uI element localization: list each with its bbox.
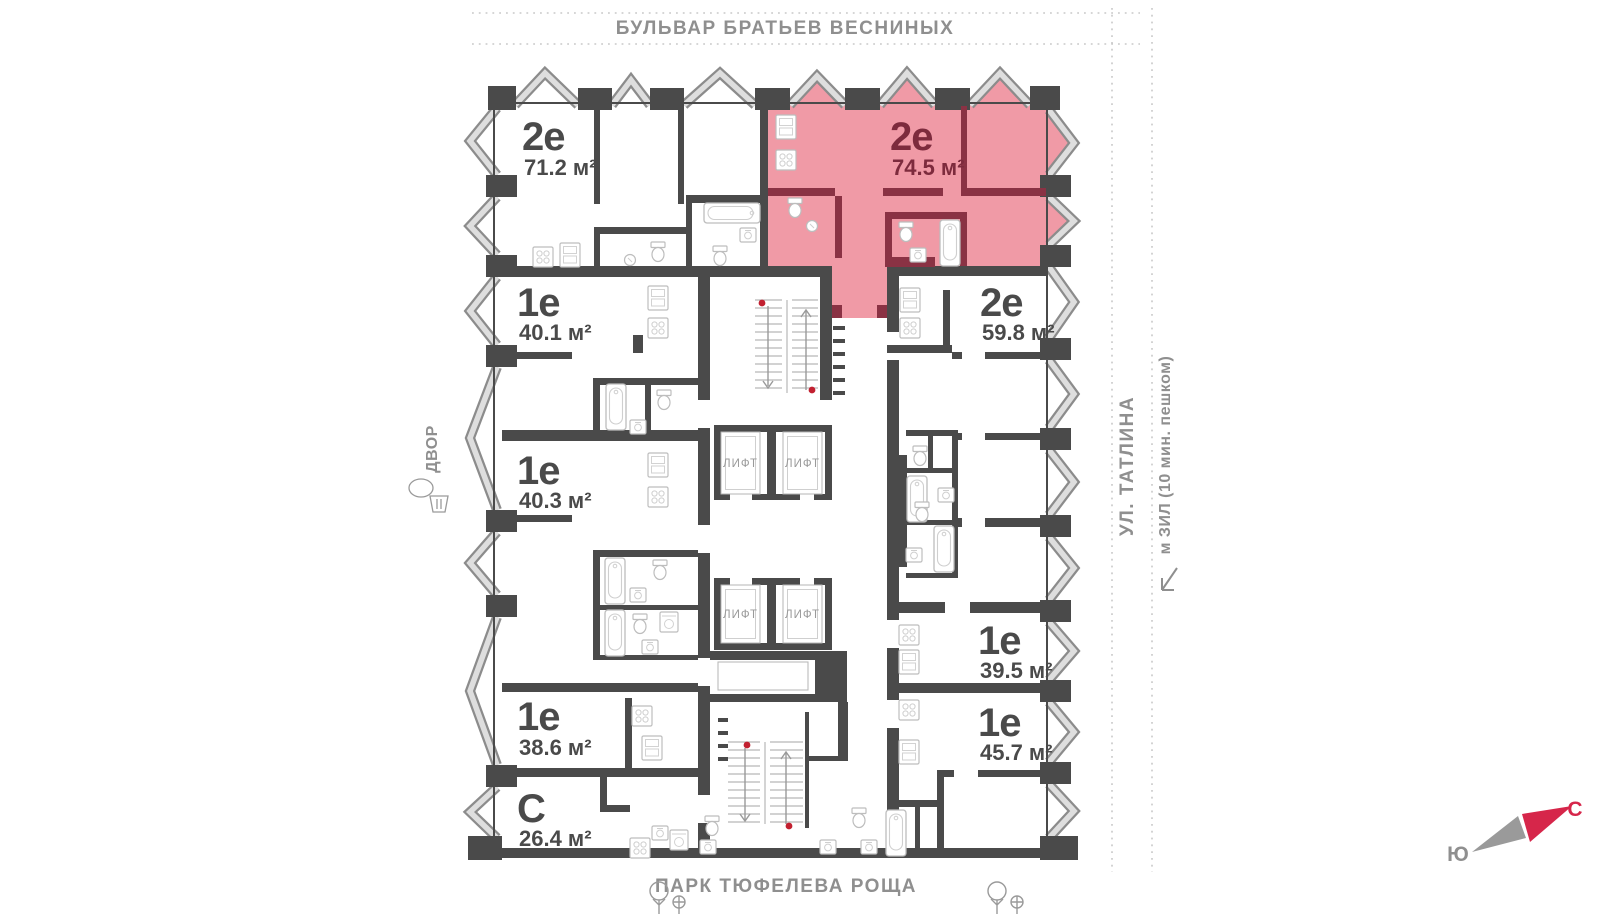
lift-label: ЛИФТ bbox=[723, 458, 758, 470]
toilet-icon bbox=[653, 560, 667, 580]
highlighted-apartment-fill[interactable] bbox=[768, 78, 1070, 318]
sink-icon bbox=[910, 248, 926, 262]
sink-icon bbox=[820, 840, 836, 854]
fridge-icon bbox=[648, 453, 668, 477]
tree-icon bbox=[988, 882, 1023, 914]
stove-icon bbox=[900, 318, 920, 338]
svg-text:С: С bbox=[517, 787, 545, 831]
fridge-icon bbox=[899, 650, 919, 674]
svg-text:2е: 2е bbox=[980, 281, 1023, 325]
svg-text:45.7 м²: 45.7 м² bbox=[980, 740, 1053, 765]
apartment-1e-38-6[interactable]: 1е 38.6 м² bbox=[517, 695, 592, 760]
svg-text:1е: 1е bbox=[517, 449, 560, 493]
street-label-top: БУЛЬВАР БРАТЬЕВ ВЕСНИНЫХ bbox=[616, 18, 955, 39]
compass-south-needle bbox=[1472, 816, 1526, 852]
toilet-icon bbox=[915, 502, 929, 522]
compass-north-label: С bbox=[1567, 798, 1582, 821]
toilet-icon bbox=[899, 222, 913, 242]
lift-label: ЛИФТ bbox=[785, 609, 820, 621]
sink-icon bbox=[630, 588, 646, 602]
sink-icon bbox=[625, 255, 636, 266]
apartment-1e-45-7[interactable]: 1е 45.7 м² bbox=[978, 701, 1053, 765]
floor-plan-svg: ЛИФТ ЛИФТ ЛИФТ ЛИФТ bbox=[0, 0, 1600, 920]
bathtub-icon bbox=[605, 610, 625, 656]
apartment-2e-71[interactable]: 2е 71.2 м² bbox=[522, 115, 597, 180]
courtyard-label: ДВОР bbox=[424, 425, 441, 473]
toilet-icon bbox=[713, 246, 727, 266]
toilet-icon bbox=[913, 446, 927, 466]
toilet-icon bbox=[633, 614, 647, 634]
fridge-icon bbox=[560, 243, 580, 267]
washing-machine-icon bbox=[660, 612, 678, 632]
toilet-icon bbox=[651, 242, 665, 262]
compass-south-label: Ю bbox=[1447, 843, 1469, 866]
apartment-1e-40-1[interactable]: 1е 40.1 м² bbox=[517, 281, 592, 345]
stove-icon bbox=[776, 150, 796, 170]
stove-icon bbox=[632, 706, 652, 726]
stove-icon bbox=[630, 838, 650, 858]
svg-text:1е: 1е bbox=[517, 281, 560, 325]
svg-text:2е: 2е bbox=[522, 115, 565, 159]
apartment-1e-39-5[interactable]: 1е 39.5 м² bbox=[978, 619, 1053, 683]
svg-text:2е: 2е bbox=[890, 115, 933, 159]
bathtub-icon bbox=[934, 526, 954, 572]
bathtub-icon bbox=[704, 203, 760, 223]
fridge-icon bbox=[776, 115, 796, 139]
bathtub-icon bbox=[886, 810, 906, 856]
svg-text:74.5 м²: 74.5 м² bbox=[892, 155, 965, 180]
bathtub-icon bbox=[940, 220, 960, 266]
toilet-icon bbox=[788, 198, 802, 218]
fridge-icon bbox=[899, 740, 919, 764]
apartment-c-26-4[interactable]: С 26.4 м² bbox=[517, 787, 592, 851]
toilet-icon bbox=[657, 390, 671, 410]
svg-text:26.4 м²: 26.4 м² bbox=[519, 826, 592, 851]
metro-label: м ЗИЛ (10 мин. пешком) bbox=[1157, 356, 1174, 555]
stove-icon bbox=[899, 700, 919, 720]
courtyard-icon bbox=[409, 479, 448, 512]
apartment-2e-59[interactable]: 2е 59.8 м² bbox=[980, 281, 1055, 345]
sink-icon bbox=[700, 840, 716, 854]
compass-north-needle bbox=[1522, 806, 1572, 842]
sink-icon bbox=[938, 488, 954, 502]
fridge-icon bbox=[900, 288, 920, 312]
svg-text:40.3 м²: 40.3 м² bbox=[519, 488, 592, 513]
bathtub-icon bbox=[605, 558, 625, 604]
toilet-icon bbox=[705, 816, 719, 836]
floorplan-page: ЛИФТ ЛИФТ ЛИФТ ЛИФТ bbox=[0, 0, 1600, 920]
washing-machine-icon bbox=[670, 830, 688, 850]
sink-icon bbox=[652, 826, 668, 840]
bathtub-icon bbox=[606, 384, 626, 430]
sink-icon bbox=[906, 548, 922, 562]
sink-icon bbox=[740, 228, 756, 242]
apartment-1e-40-3[interactable]: 1е 40.3 м² bbox=[517, 449, 592, 513]
sink-icon bbox=[861, 840, 877, 854]
toilet-icon bbox=[852, 808, 866, 828]
compass: Ю С bbox=[1447, 798, 1582, 866]
svg-text:1е: 1е bbox=[978, 701, 1021, 745]
street-label-right: УЛ. ТАТЛИНА bbox=[1117, 396, 1138, 536]
lift-label: ЛИФТ bbox=[785, 458, 820, 470]
fridge-icon bbox=[648, 286, 668, 310]
stairs-upper bbox=[755, 298, 818, 393]
stove-icon bbox=[899, 625, 919, 645]
stove-icon bbox=[648, 318, 668, 338]
svg-text:59.8 м²: 59.8 м² bbox=[982, 320, 1055, 345]
svg-text:71.2 м²: 71.2 м² bbox=[524, 155, 597, 180]
sink-icon bbox=[630, 420, 646, 434]
sink-icon bbox=[807, 221, 818, 232]
svg-text:38.6 м²: 38.6 м² bbox=[519, 735, 592, 760]
stove-icon bbox=[533, 247, 553, 267]
lift-label: ЛИФТ bbox=[723, 609, 758, 621]
stove-icon bbox=[648, 487, 668, 507]
svg-text:1е: 1е bbox=[517, 695, 560, 739]
fridge-icon bbox=[642, 736, 662, 760]
park-label: ПАРК ТЮФЕЛЕВА РОЩА bbox=[655, 876, 917, 897]
sink-icon bbox=[642, 640, 658, 654]
stairs-lower bbox=[728, 740, 803, 829]
svg-text:39.5 м²: 39.5 м² bbox=[980, 658, 1053, 683]
svg-text:1е: 1е bbox=[978, 619, 1021, 663]
svg-text:40.1 м²: 40.1 м² bbox=[519, 320, 592, 345]
metro-arrow-icon bbox=[1162, 568, 1177, 590]
